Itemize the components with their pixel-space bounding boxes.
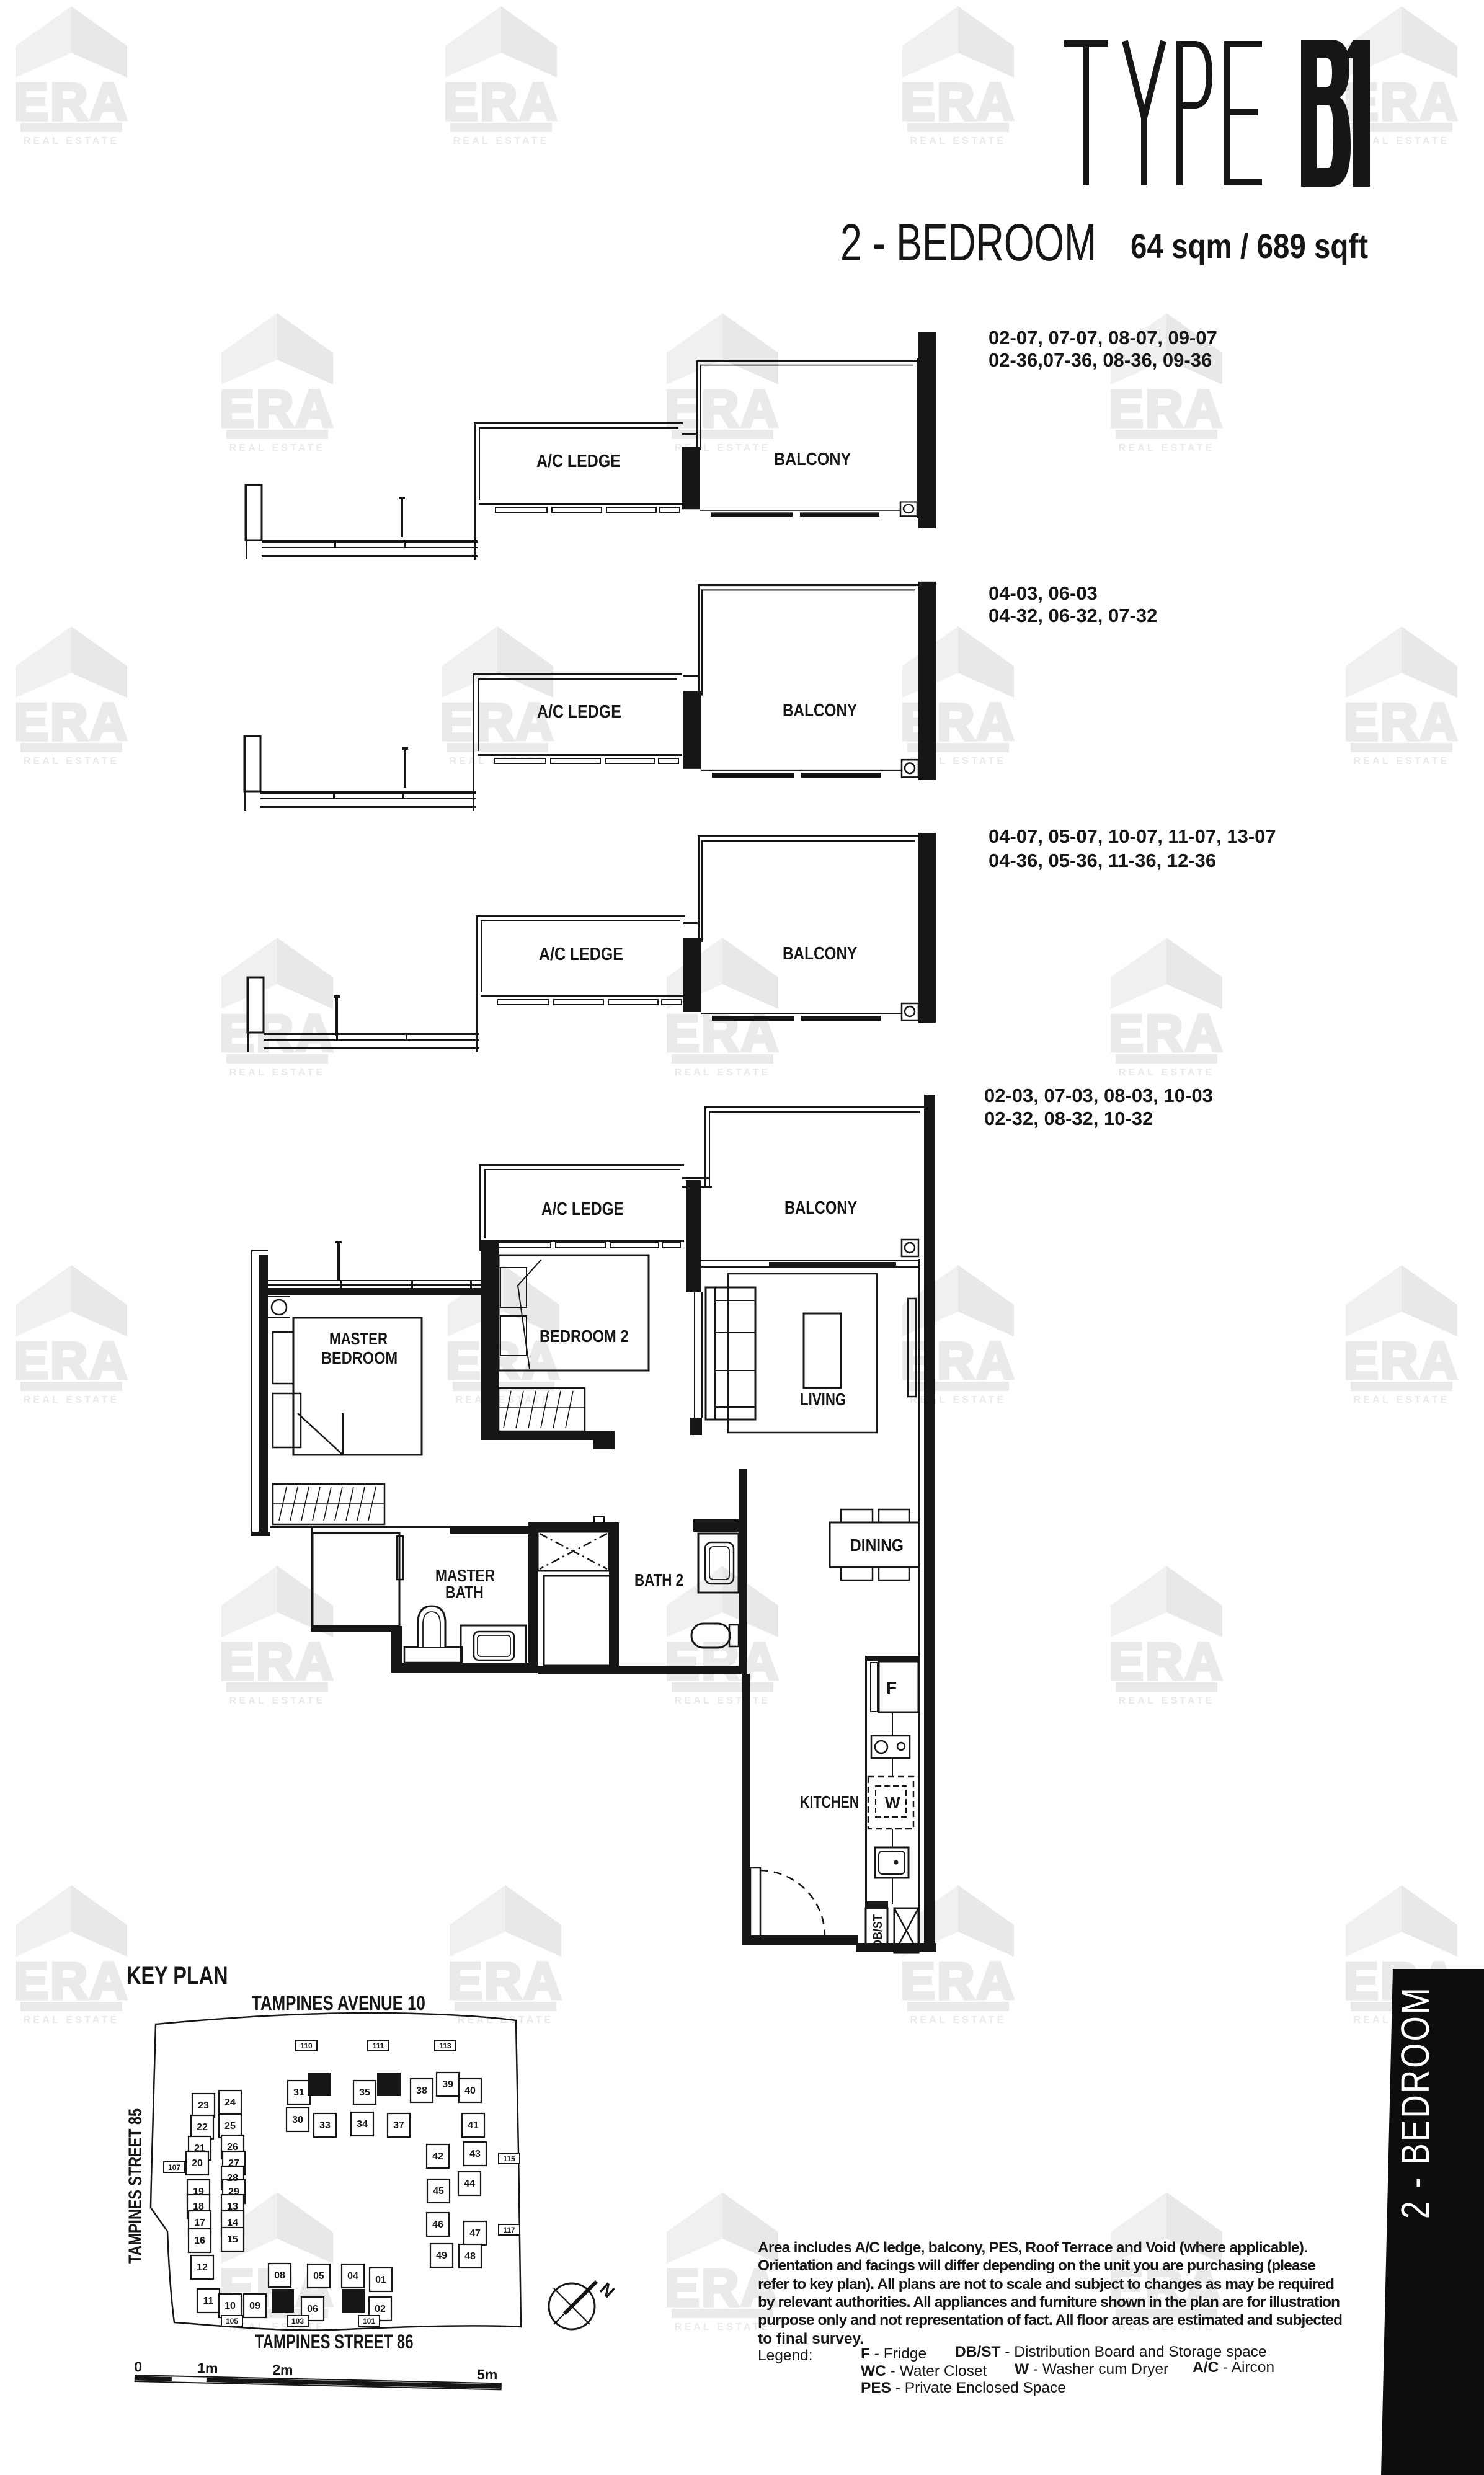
svg-text:BALCONY: BALCONY	[774, 448, 851, 469]
svg-text:KEY PLAN: KEY PLAN	[127, 1962, 228, 1989]
svg-text:20: 20	[192, 2158, 203, 2169]
svg-text:BALCONY: BALCONY	[784, 1198, 858, 1218]
svg-text:105: 105	[226, 2317, 238, 2326]
svg-text:Legend:: Legend:	[758, 2347, 813, 2364]
svg-text:15: 15	[227, 2234, 238, 2245]
svg-text:27: 27	[228, 2158, 239, 2169]
svg-text:47: 47	[469, 2228, 481, 2239]
svg-text:Orientation and facings will d: Orientation and facings will differ depe…	[758, 2257, 1316, 2274]
svg-text:PES - Private Enclosed Space: PES - Private Enclosed Space	[861, 2379, 1066, 2396]
svg-text:35: 35	[359, 2087, 370, 2098]
svg-text:40: 40	[464, 2086, 476, 2096]
svg-text:W - Washer cum Dryer: W - Washer cum Dryer	[1015, 2361, 1168, 2378]
svg-text:46: 46	[432, 2220, 443, 2230]
svg-text:25: 25	[224, 2121, 236, 2131]
svg-text:04-03, 06-03: 04-03, 06-03	[989, 582, 1098, 604]
svg-text:BEDROOM: BEDROOM	[321, 1349, 398, 1367]
svg-text:BATH: BATH	[445, 1583, 484, 1602]
svg-text:TAMPINES STREET 86: TAMPINES STREET 86	[255, 2331, 413, 2353]
svg-text:24: 24	[224, 2097, 236, 2108]
svg-text:16: 16	[194, 2236, 205, 2246]
svg-text:37: 37	[393, 2120, 404, 2131]
svg-text:115: 115	[503, 2154, 515, 2163]
svg-text:43: 43	[469, 2149, 481, 2159]
svg-text:KITCHEN: KITCHEN	[800, 1792, 859, 1811]
svg-text:45: 45	[433, 2186, 444, 2197]
svg-text:04-36, 05-36, 11-36, 12-36: 04-36, 05-36, 11-36, 12-36	[989, 850, 1216, 871]
svg-text:04-32, 06-32, 07-32: 04-32, 06-32, 07-32	[989, 605, 1157, 626]
svg-text:1m: 1m	[197, 2360, 218, 2376]
svg-text:34: 34	[357, 2119, 368, 2130]
svg-text:17: 17	[194, 2218, 205, 2228]
svg-text:02-32, 08-32, 10-32: 02-32, 08-32, 10-32	[984, 1108, 1153, 1129]
svg-text:28: 28	[227, 2173, 238, 2184]
svg-text:30: 30	[292, 2115, 303, 2125]
svg-text:5m: 5m	[477, 2366, 498, 2383]
svg-text:49: 49	[436, 2251, 447, 2261]
svg-text:DB/ST: DB/ST	[871, 1914, 885, 1948]
svg-text:A/C LEDGE: A/C LEDGE	[536, 451, 621, 471]
svg-text:14: 14	[227, 2218, 238, 2228]
svg-text:12: 12	[197, 2262, 208, 2273]
svg-text:02-03, 07-03, 08-03, 10-03: 02-03, 07-03, 08-03, 10-03	[984, 1085, 1213, 1106]
svg-text:110: 110	[300, 2042, 313, 2050]
svg-text:2m: 2m	[272, 2362, 293, 2378]
svg-text:13: 13	[227, 2202, 238, 2212]
svg-text:refer to key plan). All plans: refer to key plan). All plans are not to…	[758, 2276, 1335, 2293]
svg-text:22: 22	[197, 2122, 208, 2133]
svg-text:F: F	[886, 1678, 897, 1697]
svg-text:64 sqm / 689 sqft: 64 sqm / 689 sqft	[1131, 227, 1368, 266]
svg-text:2 - BEDROOM: 2 - BEDROOM	[840, 213, 1096, 272]
svg-text:19: 19	[193, 2187, 204, 2197]
svg-text:111: 111	[373, 2042, 384, 2050]
svg-text:2 - BEDROOM: 2 - BEDROOM	[1393, 1986, 1438, 2219]
svg-text:05: 05	[313, 2271, 324, 2282]
svg-text:21: 21	[194, 2143, 205, 2154]
svg-text:08: 08	[274, 2270, 285, 2281]
svg-text:02-36,07-36, 08-36, 09-36: 02-36,07-36, 08-36, 09-36	[989, 349, 1212, 371]
svg-text:42: 42	[432, 2151, 443, 2162]
svg-text:117: 117	[503, 2226, 515, 2234]
svg-text:A/C - Aircon: A/C - Aircon	[1193, 2359, 1274, 2376]
svg-text:38: 38	[416, 2086, 427, 2096]
svg-text:10: 10	[224, 2301, 236, 2311]
svg-text:18: 18	[193, 2202, 204, 2212]
svg-text:02: 02	[375, 2304, 386, 2314]
svg-text:BATH 2: BATH 2	[634, 1571, 683, 1590]
svg-text:TAMPINES STREET 85: TAMPINES STREET 85	[125, 2108, 145, 2264]
svg-text:WC - Water Closet: WC - Water Closet	[861, 2363, 987, 2379]
svg-text:01: 01	[375, 2275, 386, 2285]
svg-text:23: 23	[198, 2100, 209, 2111]
svg-text:BALCONY: BALCONY	[783, 700, 857, 721]
svg-text:F - Fridge: F - Fridge	[861, 2345, 926, 2362]
svg-text:11: 11	[203, 2296, 214, 2306]
svg-text:A/C LEDGE: A/C LEDGE	[541, 1199, 624, 1219]
svg-text:02-07, 07-07, 08-07, 09-07: 02-07, 07-07, 08-07, 09-07	[989, 327, 1217, 349]
svg-text:31: 31	[293, 2087, 304, 2098]
svg-text:A/C LEDGE: A/C LEDGE	[537, 701, 621, 721]
svg-text:Area includes A/C ledge, balco: Area includes A/C ledge, balcony, PES, R…	[758, 2239, 1308, 2256]
svg-text:41: 41	[468, 2120, 479, 2131]
svg-text:29: 29	[228, 2187, 239, 2197]
svg-text:by relevant authorities. All a: by relevant authorities. All appliances …	[758, 2294, 1340, 2311]
svg-text:LIVING: LIVING	[800, 1390, 846, 1410]
svg-text:48: 48	[464, 2251, 476, 2262]
svg-text:0: 0	[134, 2358, 142, 2375]
svg-text:purpose only and not represent: purpose only and not representation of f…	[758, 2312, 1343, 2329]
svg-text:33: 33	[319, 2120, 331, 2131]
svg-text:DINING: DINING	[850, 1535, 904, 1555]
svg-text:DB/ST - Distribution Board and: DB/ST - Distribution Board and Storage s…	[955, 2344, 1267, 2360]
svg-text:BALCONY: BALCONY	[783, 943, 857, 964]
svg-text:to final survey.: to final survey.	[758, 2331, 864, 2347]
svg-text:04: 04	[347, 2271, 358, 2282]
svg-text:A/C LEDGE: A/C LEDGE	[539, 944, 623, 964]
svg-text:06: 06	[307, 2304, 318, 2314]
svg-text:26: 26	[227, 2142, 238, 2153]
svg-text:BEDROOM 2: BEDROOM 2	[540, 1327, 629, 1346]
svg-text:04-07, 05-07, 10-07, 11-07, 13: 04-07, 05-07, 10-07, 11-07, 13-07	[989, 825, 1276, 847]
svg-text:09: 09	[249, 2301, 260, 2311]
svg-text:TAMPINES AVENUE 10: TAMPINES AVENUE 10	[252, 1993, 425, 2015]
svg-text:44: 44	[464, 2179, 475, 2189]
svg-text:W: W	[885, 1793, 900, 1812]
svg-text:101: 101	[363, 2317, 375, 2326]
svg-text:107: 107	[168, 2163, 180, 2172]
svg-text:MASTER: MASTER	[329, 1330, 388, 1349]
svg-text:103: 103	[291, 2317, 304, 2326]
svg-text:39: 39	[442, 2079, 453, 2090]
svg-text:113: 113	[439, 2042, 451, 2050]
svg-text:N: N	[596, 2279, 618, 2302]
